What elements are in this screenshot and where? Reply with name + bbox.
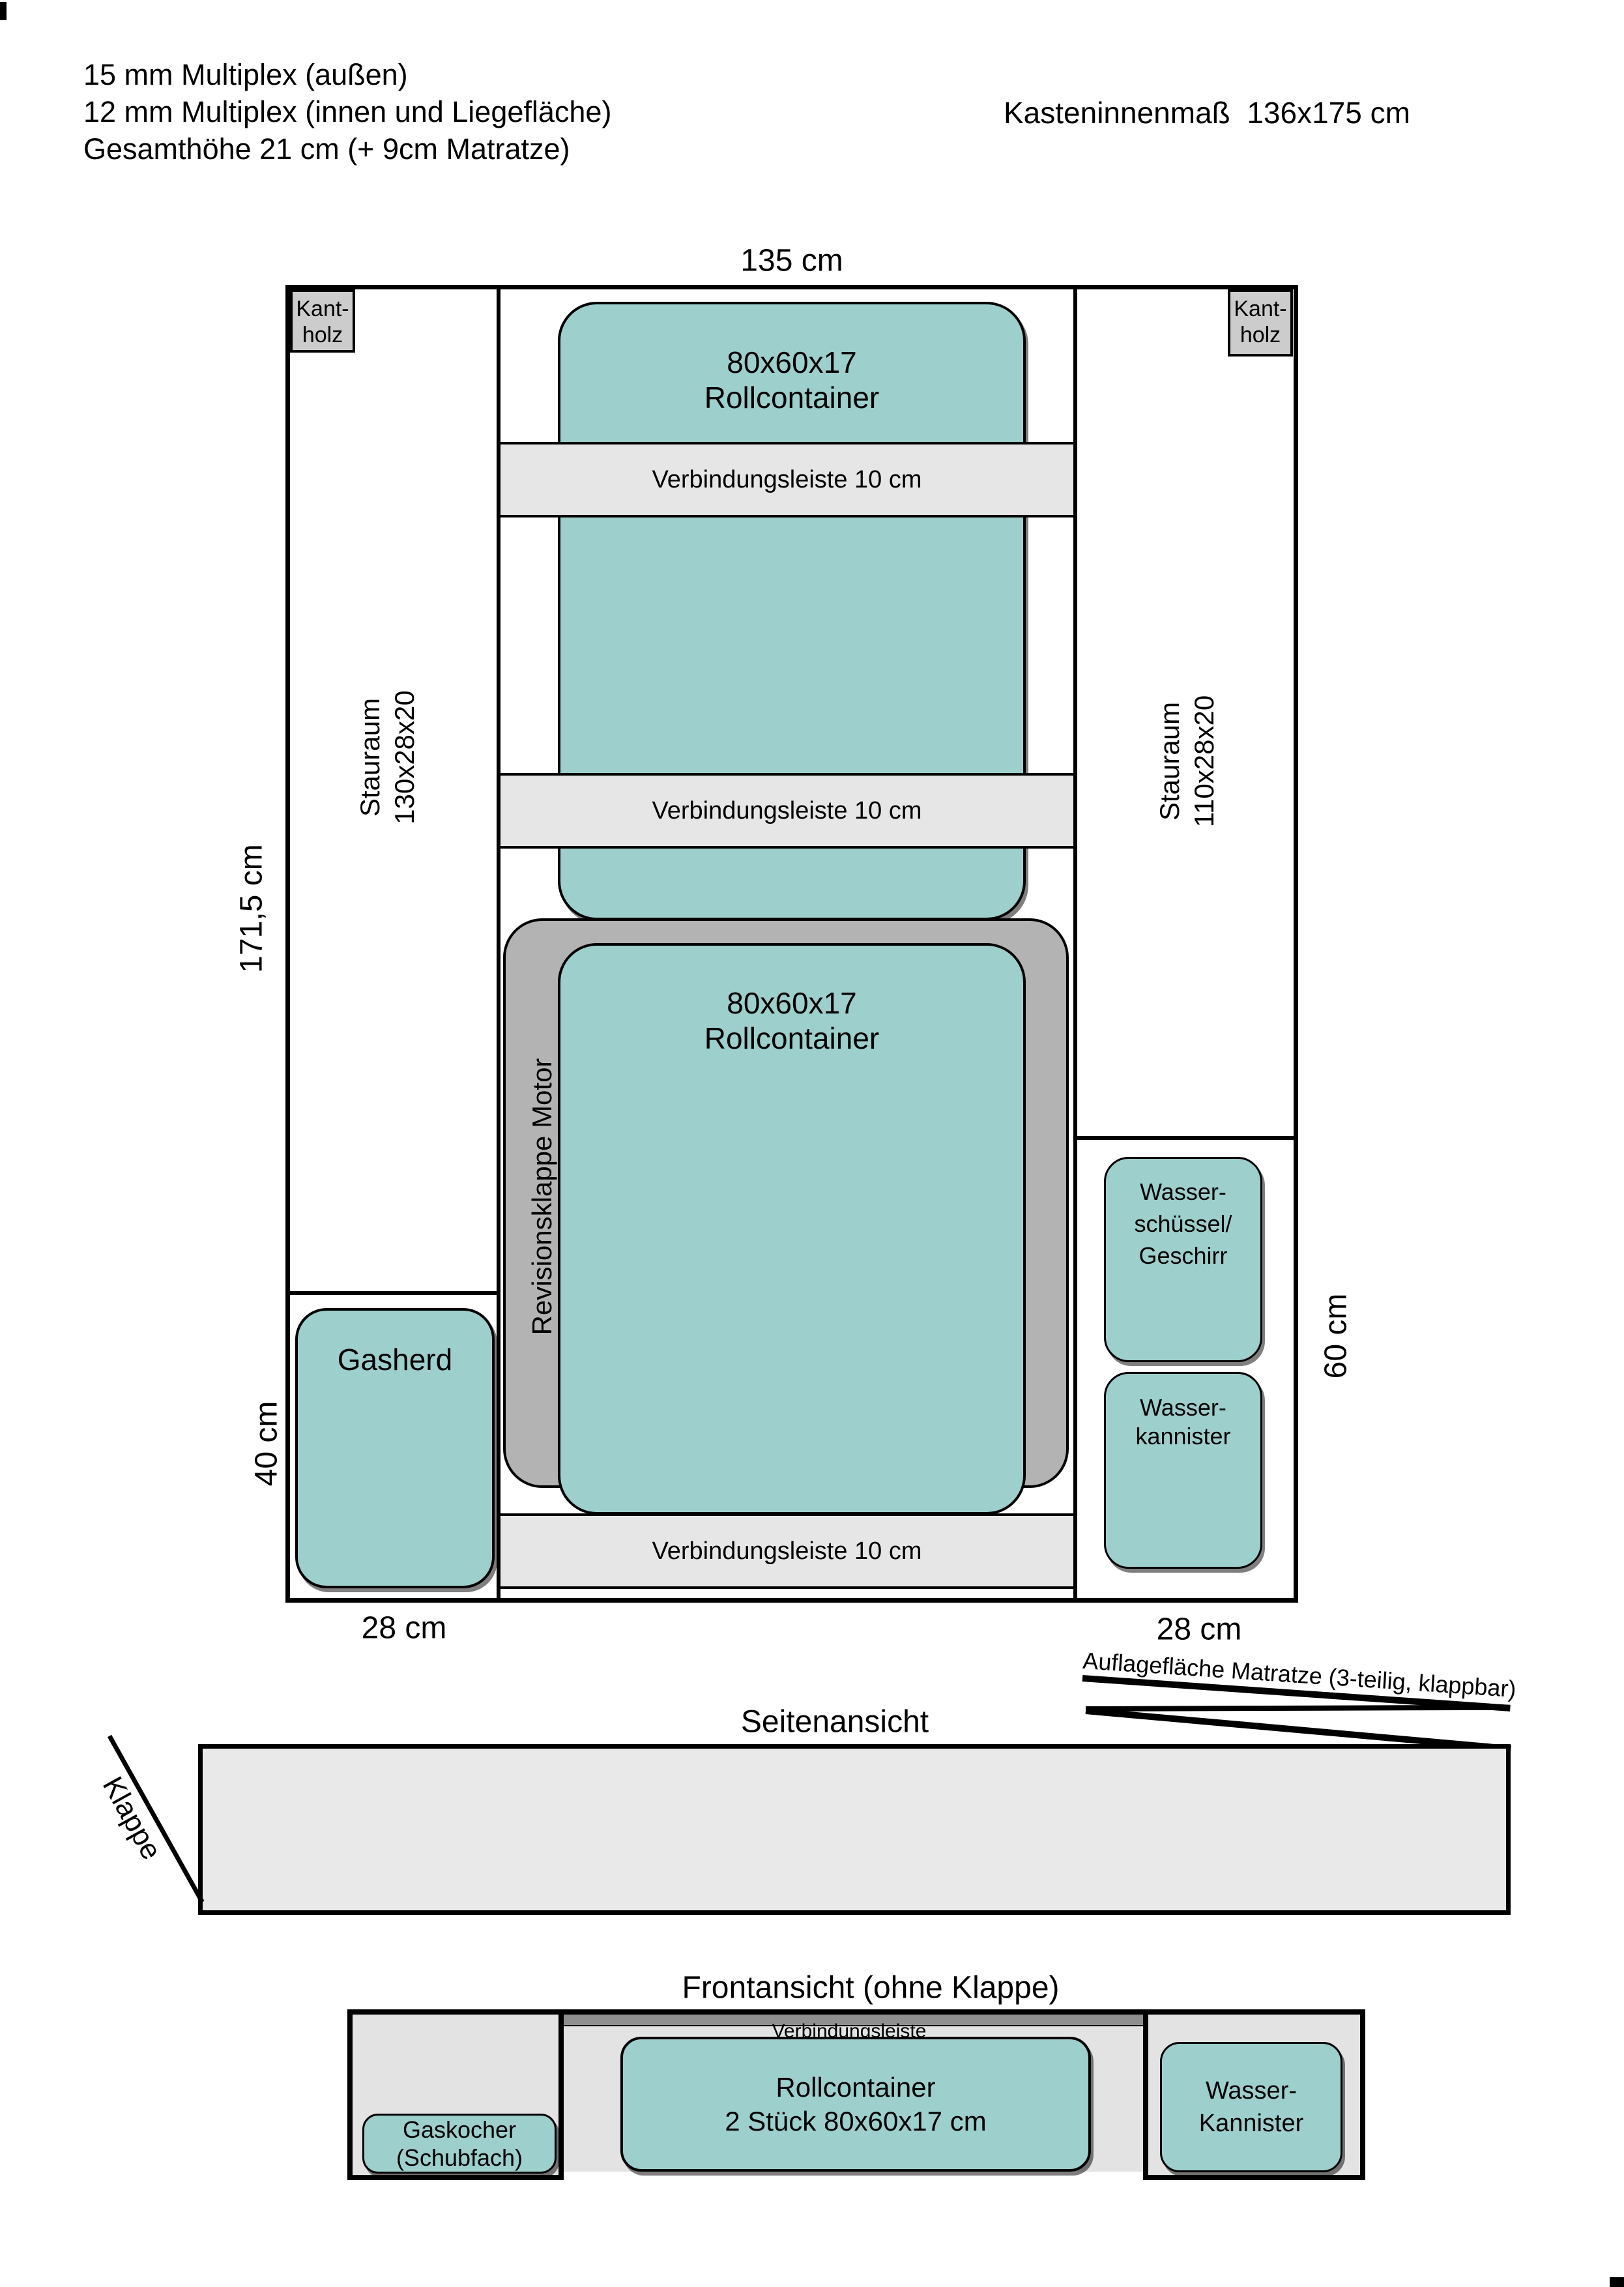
front-rollcontainer-size: 2 Stück 80x60x17 cm [725, 2105, 987, 2138]
rollcontainer-2-label: 80x60x17 Rollcontainer [560, 985, 1023, 1056]
wasserkannister-box: Wasser- kannister [1104, 1372, 1262, 1569]
stauraum-right-label: Stauraum 110x28x20 [1152, 695, 1221, 827]
gasherd-label: Gasherd [298, 1342, 492, 1377]
stauraum-size: 110x28x20 [1187, 695, 1221, 827]
rollcontainer-2: 80x60x17 Rollcontainer [558, 943, 1026, 1515]
scan-mark-bottom-right [1610, 2277, 1624, 2287]
stauraum-name: Stauraum [353, 690, 387, 824]
construction-drawing-page: 15 mm Multiplex (außen) 12 mm Multiplex … [0, 0, 1624, 2287]
kantholz-label: holz [293, 322, 353, 348]
mattress-support-line-middle [1086, 1705, 1510, 1712]
verbindungsleiste-strip-1: Verbindungsleiste 10 cm [500, 442, 1073, 517]
material-note-line: 15 mm Multiplex (außen) [83, 56, 611, 93]
material-note-line: 12 mm Multiplex (innen und Liegefläche) [83, 93, 611, 130]
front-view-title: Frontansicht (ohne Klappe) [682, 1970, 1060, 2006]
material-notes: 15 mm Multiplex (außen) 12 mm Multiplex … [83, 56, 611, 168]
gasherd-box: Gasherd [295, 1308, 495, 1588]
wasserschuessel-line: schüssel/ [1106, 1208, 1260, 1240]
plan-height-dimension: 171,5 cm [234, 844, 270, 972]
partition-right-shelf [1077, 1136, 1294, 1140]
kantholz-block-right: Kant- holz [1228, 289, 1293, 357]
verbindungsleiste-strip-2: Verbindungsleiste 10 cm [500, 773, 1073, 849]
rollcontainer-size-label: 80x60x17 [560, 985, 1023, 1021]
dimension-28cm-right: 28 cm [1157, 1612, 1242, 1648]
wasserschuessel-line: Geschirr [1106, 1240, 1260, 1272]
wasserkannister-line: kannister [1106, 1422, 1260, 1451]
front-gaskocher-note: (Schubfach) [396, 2144, 523, 2172]
kantholz-label: Kant- [1230, 296, 1290, 322]
verbindungsleiste-3-label: Verbindungsleiste 10 cm [652, 1537, 921, 1566]
dimension-28cm-left: 28 cm [362, 1610, 447, 1646]
kantholz-label: Kant- [293, 296, 353, 322]
wasserkannister-label: Wasser- kannister [1106, 1393, 1260, 1451]
stauraum-name: Stauraum [1152, 695, 1187, 827]
front-kannister-line: Kannister [1199, 2107, 1304, 2140]
partition-right-column [1073, 289, 1077, 1598]
kantholz-block-left: Kant- holz [290, 289, 355, 353]
material-note-line: Gesamthöhe 21 cm (+ 9cm Matratze) [83, 130, 611, 168]
verbindungsleiste-1-label: Verbindungsleiste 10 cm [652, 466, 921, 494]
front-rollcontainer-box: Rollcontainer 2 Stück 80x60x17 cm [620, 2037, 1091, 2172]
kantholz-label: holz [1230, 322, 1290, 348]
scan-mark-top-left [0, 2, 7, 20]
rollcontainer-size-label: 80x60x17 [560, 345, 1023, 380]
rollcontainer-1-label: 80x60x17 Rollcontainer [560, 345, 1023, 415]
verbindungsleiste-strip-3: Verbindungsleiste 10 cm [500, 1513, 1073, 1589]
rollcontainer-name-label: Rollcontainer [560, 1021, 1023, 1056]
front-wasserkannister-box: Wasser- Kannister [1160, 2042, 1342, 2172]
wasserschuessel-line: Wasser- [1106, 1176, 1260, 1208]
rollcontainer-name-label: Rollcontainer [560, 380, 1023, 415]
front-gaskocher-box: Gaskocher (Schubfach) [362, 2114, 557, 2174]
front-gaskocher-name: Gaskocher [403, 2116, 516, 2144]
wasserschuessel-box: Wasser- schüssel/ Geschirr [1104, 1157, 1262, 1362]
partition-left-column [497, 289, 500, 1598]
dimension-40cm: 40 cm [249, 1401, 285, 1487]
front-rollcontainer-name: Rollcontainer [776, 2071, 935, 2105]
wasserkannister-line: Wasser- [1106, 1393, 1260, 1422]
partition-gasherd-shelf [290, 1291, 497, 1295]
stauraum-left-label: Stauraum 130x28x20 [353, 690, 422, 824]
stauraum-size: 130x28x20 [387, 690, 422, 824]
inner-dimensions-note: Kasteninnenmaß 136x175 cm [1004, 95, 1410, 130]
side-view-title: Seitenansicht [741, 1704, 929, 1740]
wasserschuessel-label: Wasser- schüssel/ Geschirr [1106, 1176, 1260, 1272]
plan-width-dimension: 135 cm [740, 243, 843, 279]
verbindungsleiste-2-label: Verbindungsleiste 10 cm [652, 797, 921, 825]
side-view-body [198, 1744, 1511, 1915]
front-kannister-line: Wasser- [1206, 2075, 1297, 2107]
revisionsklappe-label: Revisionsklappe Motor [527, 1058, 558, 1335]
dimension-60cm: 60 cm [1318, 1294, 1354, 1379]
